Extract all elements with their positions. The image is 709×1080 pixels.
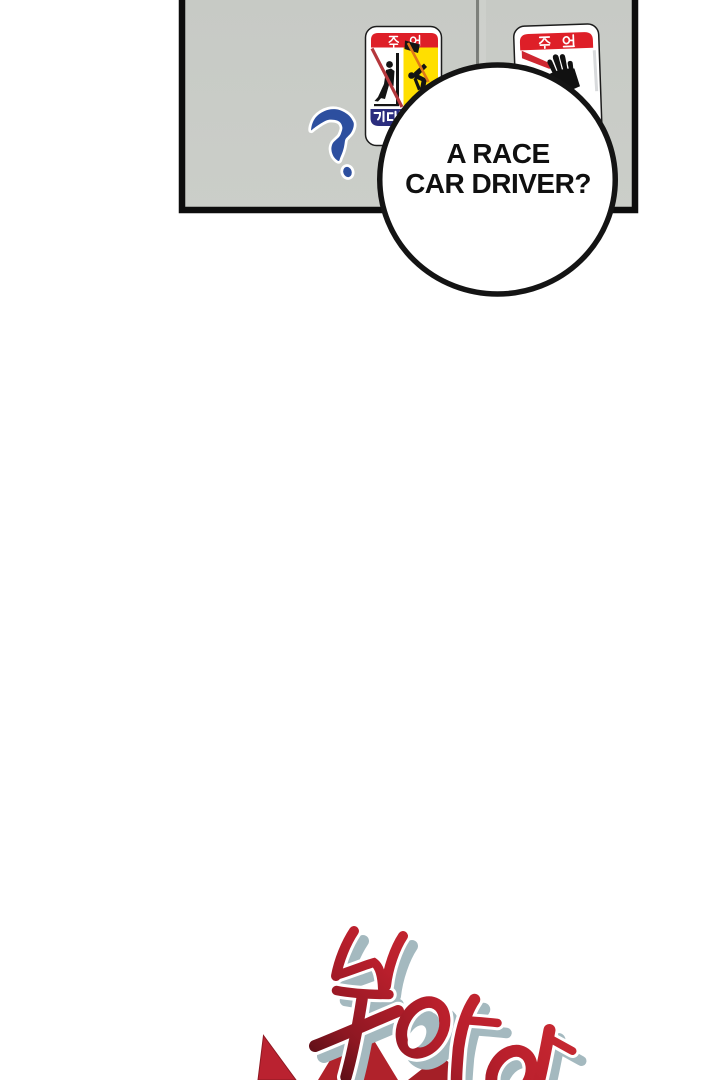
svg-text:A RACE: A RACE [446, 138, 549, 169]
svg-text:CAR DRIVER?: CAR DRIVER? [405, 168, 591, 199]
